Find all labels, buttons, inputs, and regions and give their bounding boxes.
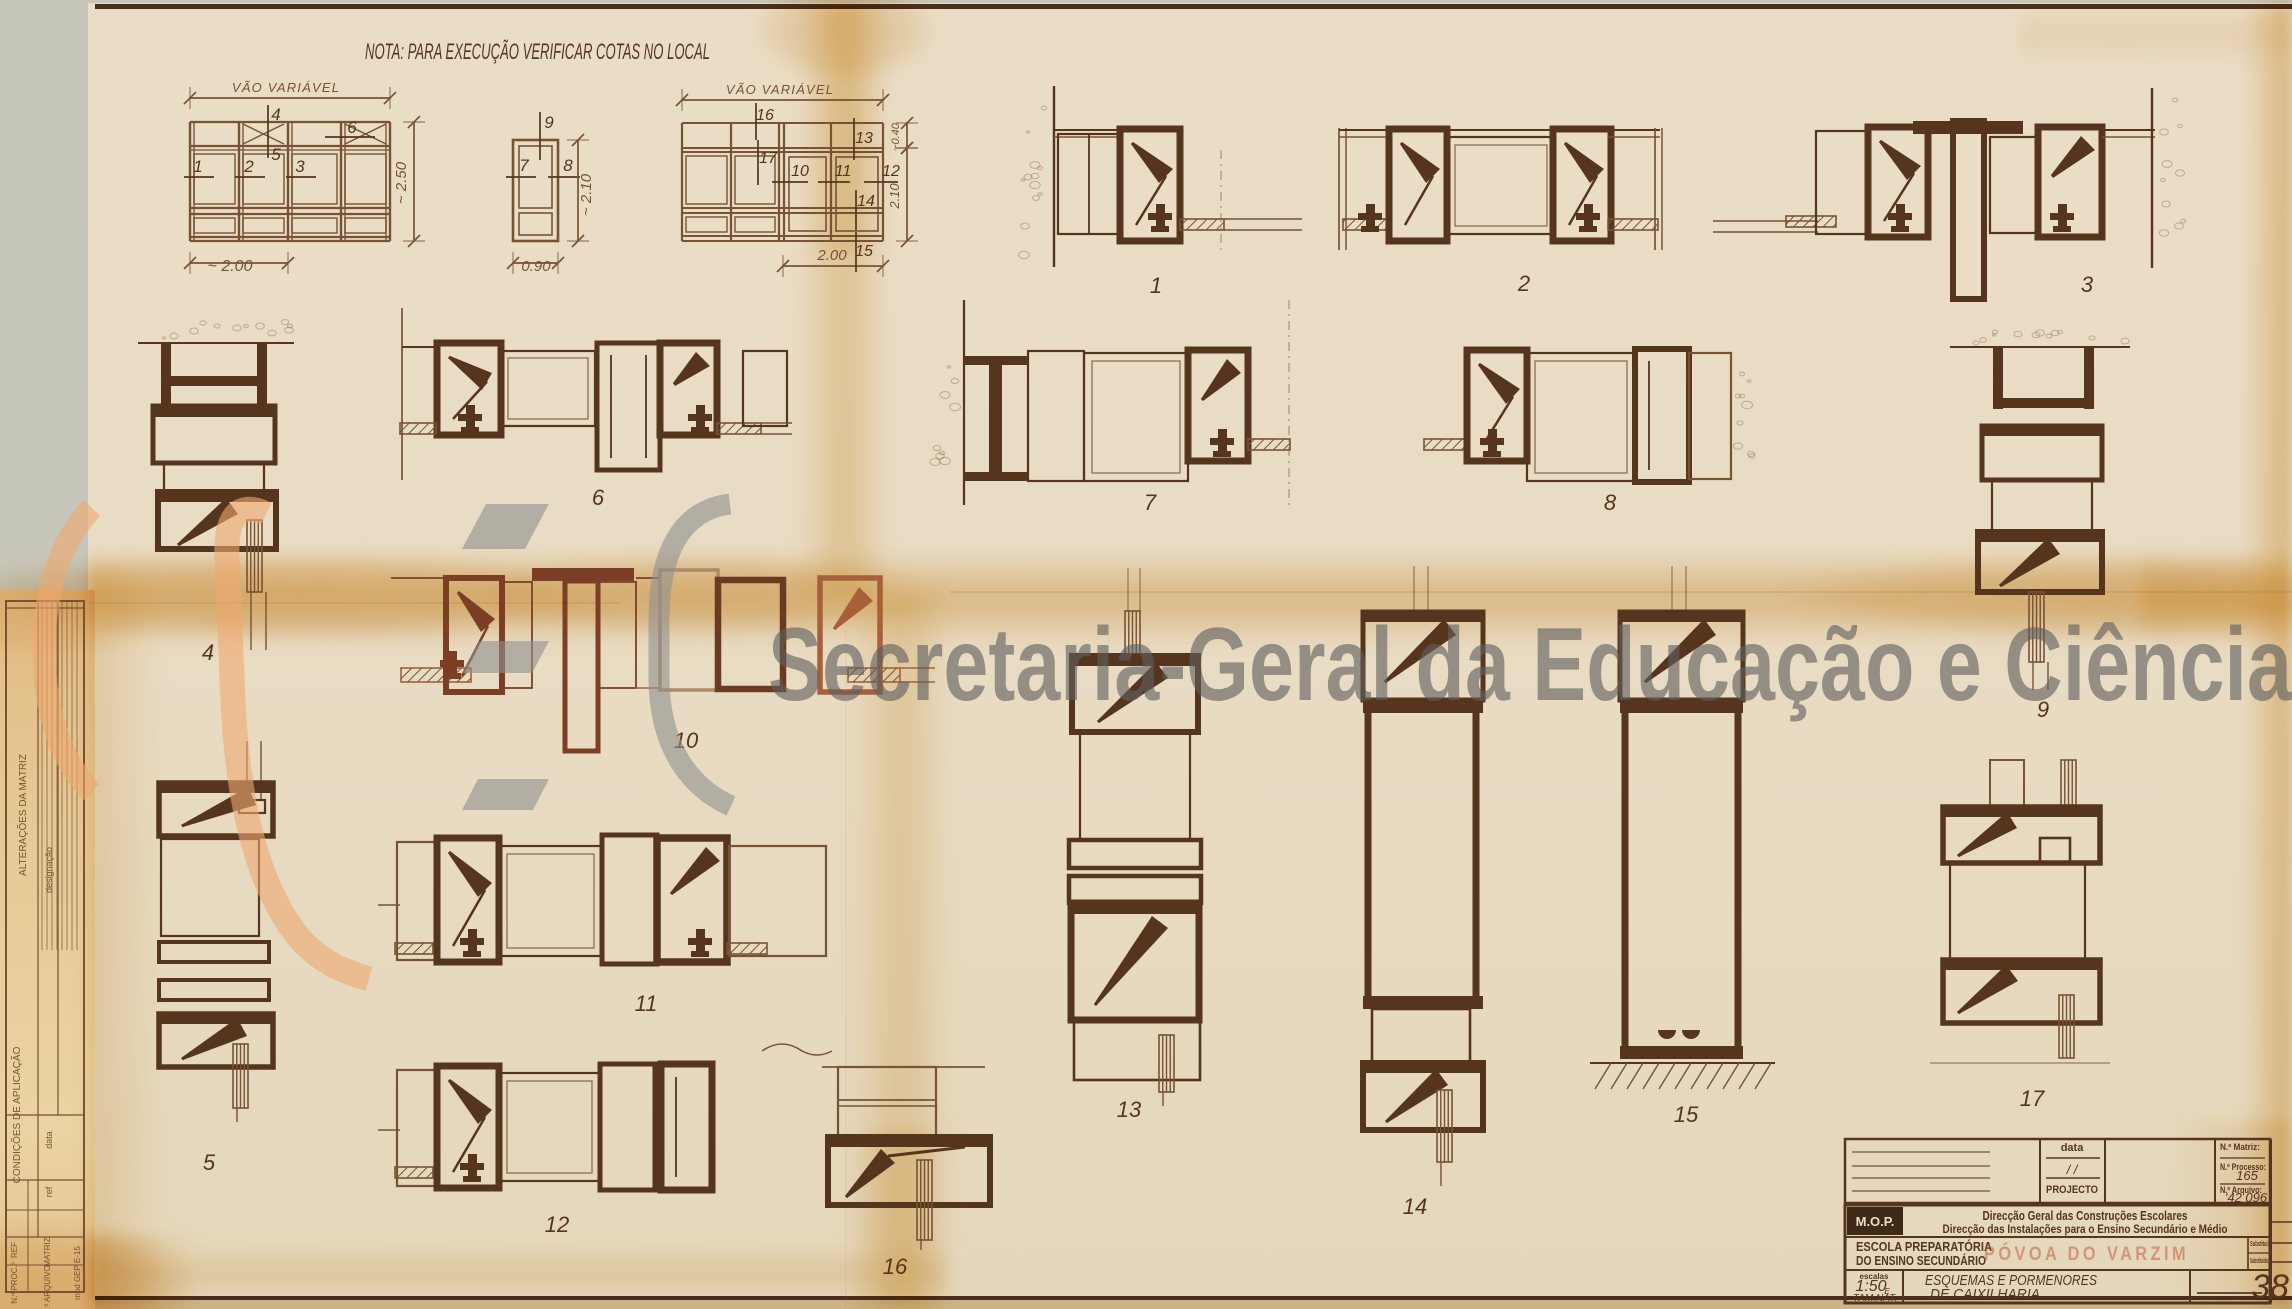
svg-text:15: 15 bbox=[855, 243, 873, 260]
svg-text:designação: designação bbox=[44, 847, 54, 893]
svg-text:Substituído:: Substituído: bbox=[2250, 1256, 2269, 1265]
svg-text:8: 8 bbox=[563, 156, 573, 175]
svg-text:9: 9 bbox=[544, 113, 554, 132]
svg-text:12: 12 bbox=[545, 1212, 569, 1237]
svg-text:0.90: 0.90 bbox=[521, 258, 551, 275]
svg-text:PÓVOA DO VARZIM: PÓVOA DO VARZIM bbox=[1984, 1243, 2189, 1265]
svg-text:5: 5 bbox=[271, 145, 281, 164]
svg-text:N.º PROC.º: N.º PROC.º bbox=[10, 1262, 19, 1303]
svg-text:3: 3 bbox=[2081, 272, 2094, 297]
svg-text:MATRIZ: MATRIZ bbox=[43, 1237, 52, 1266]
svg-text:DE CAIXILHARIA: DE CAIXILHARIA bbox=[1930, 1286, 2040, 1303]
svg-text:DO ENSINO SECUNDÁRIO: DO ENSINO SECUNDÁRIO bbox=[1856, 1253, 1986, 1268]
svg-text:16: 16 bbox=[883, 1254, 908, 1279]
svg-text:~ 2.50: ~ 2.50 bbox=[393, 161, 410, 204]
svg-text:13: 13 bbox=[855, 130, 873, 147]
svg-text:NOTA: PARA EXECUÇÃO VERIFICAR: NOTA: PARA EXECUÇÃO VERIFICAR COTAS NO L… bbox=[365, 39, 710, 64]
svg-text:14: 14 bbox=[1403, 1194, 1427, 1219]
svg-text:15: 15 bbox=[1674, 1102, 1699, 1127]
svg-text:5: 5 bbox=[203, 1150, 216, 1175]
svg-text:13: 13 bbox=[1117, 1097, 1142, 1122]
svg-text:PROJECTO: PROJECTO bbox=[2046, 1184, 2098, 1196]
svg-text:14: 14 bbox=[857, 193, 875, 210]
svg-text:N.º Matriz:: N.º Matriz: bbox=[2220, 1142, 2260, 1152]
svg-text:Secretaria-Geral da Educação e: Secretaria-Geral da Educação e Ciência bbox=[768, 607, 2292, 723]
svg-text:mod GEP E-15: mod GEP E-15 bbox=[73, 1246, 82, 1300]
svg-text:12: 12 bbox=[882, 163, 900, 180]
svg-text:N.º ARQUIVO: N.º ARQUIVO bbox=[43, 1265, 52, 1309]
svg-text:data: data bbox=[44, 1131, 54, 1149]
svg-text:6: 6 bbox=[592, 485, 605, 510]
svg-text:/ /: / / bbox=[2066, 1162, 2079, 1177]
svg-text:~ 2.10: ~ 2.10 bbox=[578, 173, 595, 216]
svg-text:M.O.P.: M.O.P. bbox=[1856, 1214, 1895, 1229]
svg-text:2: 2 bbox=[243, 157, 254, 176]
svg-text:6: 6 bbox=[347, 118, 357, 137]
svg-text:7: 7 bbox=[519, 156, 529, 175]
svg-text:TAM.NAT.: TAM.NAT. bbox=[1853, 1293, 1897, 1304]
svg-text:7: 7 bbox=[1144, 490, 1157, 515]
svg-text:REF: REF bbox=[10, 1242, 19, 1258]
svg-text:~ 2.00: ~ 2.00 bbox=[208, 258, 253, 275]
svg-text:8: 8 bbox=[1604, 490, 1617, 515]
svg-text:Substitui:: Substitui: bbox=[2250, 1239, 2269, 1248]
svg-text:17: 17 bbox=[2020, 1086, 2045, 1111]
svg-text:165: 165 bbox=[2236, 1168, 2258, 1183]
svg-text:11: 11 bbox=[835, 163, 852, 180]
svg-text:VÃO VARIÁVEL: VÃO VARIÁVEL bbox=[726, 82, 834, 97]
svg-text:Direcção das Instalações para: Direcção das Instalações para o Ensino S… bbox=[1943, 1222, 2228, 1236]
svg-text:11: 11 bbox=[635, 991, 658, 1016]
svg-text:4: 4 bbox=[202, 640, 214, 665]
svg-text:16: 16 bbox=[756, 107, 774, 124]
svg-text:ref: ref bbox=[44, 1186, 54, 1197]
svg-text:3: 3 bbox=[295, 157, 305, 176]
svg-text:~0.40: ~0.40 bbox=[890, 122, 902, 151]
svg-text:VÃO VARIÁVEL: VÃO VARIÁVEL bbox=[232, 80, 340, 95]
svg-text:ESCOLA PREPARATÓRIA: ESCOLA PREPARATÓRIA bbox=[1856, 1239, 1993, 1254]
svg-text:Direcção Geral das Construções: Direcção Geral das Construções Escolares bbox=[1983, 1208, 2188, 1223]
svg-text:2.10: 2.10 bbox=[887, 183, 902, 210]
svg-text:2.00: 2.00 bbox=[816, 247, 847, 264]
svg-text:1: 1 bbox=[193, 157, 202, 176]
svg-text:2: 2 bbox=[1517, 271, 1530, 296]
svg-text:ALTERAÇÕES DA MATRIZ: ALTERAÇÕES DA MATRIZ bbox=[16, 754, 29, 876]
svg-text:CONDIÇÕES DE APLICAÇÃO: CONDIÇÕES DE APLICAÇÃO bbox=[10, 1046, 23, 1183]
svg-text:17: 17 bbox=[759, 150, 778, 167]
svg-text:1: 1 bbox=[1150, 273, 1162, 298]
svg-text:'42 096: '42 096 bbox=[2225, 1190, 2268, 1205]
svg-text:4: 4 bbox=[271, 105, 280, 124]
svg-text:data: data bbox=[2061, 1142, 2085, 1154]
svg-text:10: 10 bbox=[791, 163, 809, 180]
